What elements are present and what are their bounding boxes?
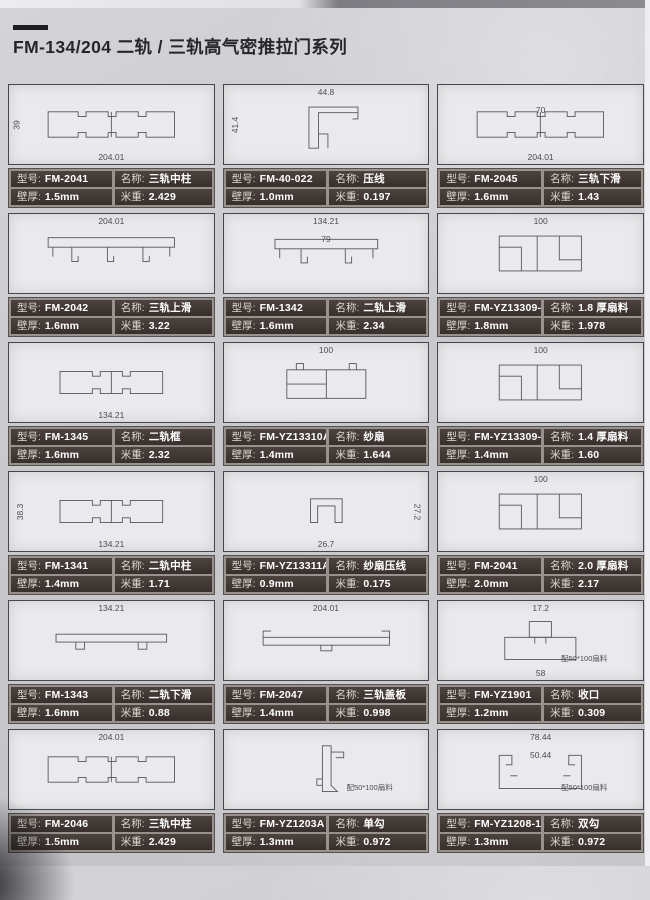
spec-model-cell: 型号:FM-2041 [440,558,541,574]
spec-weight-cell: 米重:1.978 [544,318,641,334]
spec-thickness-cell: 壁厚:1.6mm [11,447,112,463]
spec-name-label: 名称: [550,431,574,443]
spec-name-label: 名称: [550,302,574,314]
spec-thickness-cell: 壁厚:1.3mm [440,834,541,850]
profile-drawing: 70204.01 [437,84,644,165]
dimension-inner-label: 70 [536,106,545,115]
spec-thickness-cell: 壁厚:1.6mm [11,318,112,334]
spec-model-label: 型号: [232,818,256,830]
dimension-top-label: 204.01 [98,217,124,226]
spec-name-cell: 名称:纱扇 [329,429,426,445]
spec-name-cell: 名称:三轨盖板 [329,687,426,703]
title-dash [13,25,48,30]
dimension-top-label: 100 [534,217,548,226]
spec-weight-cell: 米重:1.644 [329,447,426,463]
spec-thickness-value: 1.6mm [45,707,79,719]
spec-weight-value: 0.309 [578,707,605,719]
spec-model-label: 型号: [446,689,470,701]
spec-weight-value: 2.34 [363,320,384,332]
profile-card-FM-YZ1208-1: 78.4450.44配50*100扇料型号:FM-YZ1208-1名称:双勾壁厚… [437,729,644,853]
spec-table: 型号:FM-40-022名称:压线壁厚:1.0mm米重:0.197 [223,168,430,208]
profile-drawing: 134.2179 [223,213,430,294]
spec-model-label: 型号: [446,302,470,314]
dimension-bottom-label: 58 [536,669,545,678]
profile-drawing: 100 [437,471,644,552]
fit-note: 配50*100扇料 [346,782,392,793]
spec-weight-cell: 米重:0.88 [115,705,212,721]
spec-name-value: 三轨盖板 [363,689,406,701]
spec-table: 型号:FM-YZ1203A名称:单勾壁厚:1.3mm米重:0.972 [223,813,430,853]
spec-thickness-label: 壁厚: [446,578,470,590]
spec-model-value: FM-YZ13311A [260,560,327,572]
spec-thickness-value: 1.4mm [260,707,294,719]
spec-model-cell: 型号:FM-YZ1208-1 [440,816,541,832]
spec-weight-cell: 米重:0.309 [544,705,641,721]
profile-card-FM-1342: 134.2179型号:FM-1342名称:二轨上滑壁厚:1.6mm米重:2.34 [223,213,430,337]
spec-thickness-label: 壁厚: [446,191,470,203]
spec-thickness-value: 1.0mm [260,191,294,203]
spec-weight-cell: 米重:0.175 [329,576,426,592]
spec-weight-label: 米重: [121,191,145,203]
spec-thickness-label: 壁厚: [446,707,470,719]
spec-model-cell: 型号:FM-1343 [11,687,112,703]
dimension-top-label: 204.01 [313,604,339,613]
dimension-right-label: 27.2 [413,503,422,520]
spec-model-value: FM-YZ13310A [260,431,327,443]
dimension-bottom-label: 204.01 [98,153,124,162]
dimension-top-label: 17.2 [532,604,549,613]
spec-model-value: FM-40-022 [260,173,313,185]
spec-weight-value: 2.32 [149,449,170,461]
spec-model-cell: 型号:FM-YZ13309-1.4 [440,429,541,445]
spec-name-value: 双勾 [578,818,599,830]
spec-name-cell: 名称:二轨上滑 [329,300,426,316]
spec-weight-cell: 米重:0.972 [544,834,641,850]
spec-model-value: FM-2041 [45,173,88,185]
spec-name-value: 二轨框 [149,431,181,443]
spec-weight-label: 米重: [550,707,574,719]
spec-model-value: FM-1342 [260,302,303,314]
spec-weight-cell: 米重:0.197 [329,189,426,205]
spec-weight-value: 0.175 [363,578,390,590]
spec-name-value: 2.0 厚扇料 [578,560,628,572]
spec-weight-label: 米重: [335,578,359,590]
profile-drawing: 78.4450.44配50*100扇料 [437,729,644,810]
spec-model-cell: 型号:FM-2042 [11,300,112,316]
spec-thickness-value: 1.6mm [474,191,508,203]
dimension-bottom-label: 134.21 [98,411,124,420]
profile-grid: 204.0139型号:FM-2041名称:三轨中柱壁厚:1.5mm米重:2.42… [8,84,644,853]
spec-model-cell: 型号:FM-YZ1901 [440,687,541,703]
profile-card-FM-YZ1203A: 配50*100扇料型号:FM-YZ1203A名称:单勾壁厚:1.3mm米重:0.… [223,729,430,853]
spec-weight-value: 1.43 [578,191,599,203]
spec-name-value: 三轨中柱 [149,818,192,830]
spec-thickness-cell: 壁厚:2.0mm [440,576,541,592]
spec-name-cell: 名称:收口 [544,687,641,703]
spec-name-cell: 名称:双勾 [544,816,641,832]
profile-card-FM-1343: 134.21型号:FM-1343名称:二轨下滑壁厚:1.6mm米重:0.88 [8,600,215,724]
spec-name-value: 三轨下滑 [578,173,621,185]
spec-thickness-value: 1.3mm [474,836,508,848]
spec-name-label: 名称: [335,689,359,701]
spec-name-value: 1.4 厚扇料 [578,431,628,443]
spec-name-label: 名称: [335,431,359,443]
spec-table: 型号:FM-2047名称:三轨盖板壁厚:1.4mm米重:0.998 [223,684,430,724]
spec-thickness-value: 0.9mm [260,578,294,590]
profile-drawing: 17.258配50*100扇料 [437,600,644,681]
profile-card-FM-YZ13311A: 26.727.2型号:FM-YZ13311A名称:纱扇压线壁厚:0.9mm米重:… [223,471,430,595]
spec-thickness-label: 壁厚: [446,320,470,332]
spec-weight-value: 0.197 [363,191,390,203]
spec-name-label: 名称: [550,560,574,572]
profile-drawing: 100 [437,213,644,294]
spec-model-cell: 型号:FM-YZ13311A [226,558,327,574]
spec-thickness-label: 壁厚: [17,320,41,332]
photo-corner-shadow [0,790,76,900]
spec-table: 型号:FM-YZ13309-1.4名称:1.4 厚扇料壁厚:1.4mm米重:1.… [437,426,644,466]
spec-weight-label: 米重: [121,578,145,590]
spec-thickness-label: 壁厚: [17,578,41,590]
spec-model-cell: 型号:FM-1342 [226,300,327,316]
spec-name-label: 名称: [335,173,359,185]
spec-weight-label: 米重: [550,320,574,332]
spec-model-label: 型号: [446,173,470,185]
spec-model-cell: 型号:FM-YZ13310A [226,429,327,445]
profile-card-FM-2042: 204.01型号:FM-2042名称:三轨上滑壁厚:1.6mm米重:3.22 [8,213,215,337]
spec-table: 型号:FM-2041名称:2.0 厚扇料壁厚:2.0mm米重:2.17 [437,555,644,595]
spec-model-label: 型号: [17,302,41,314]
spec-weight-value: 2.17 [578,578,599,590]
spec-thickness-value: 2.0mm [474,578,508,590]
spec-weight-label: 米重: [550,449,574,461]
spec-weight-cell: 米重:1.60 [544,447,641,463]
profile-card-FM-40-022: 44.841.4型号:FM-40-022名称:压线壁厚:1.0mm米重:0.19… [223,84,430,208]
profile-card-FM-2047: 204.01型号:FM-2047名称:三轨盖板壁厚:1.4mm米重:0.998 [223,600,430,724]
spec-name-value: 1.8 厚扇料 [578,302,628,314]
spec-model-cell: 型号:FM-1341 [11,558,112,574]
profile-drawing: 38.3134.21 [8,471,215,552]
spec-name-value: 三轨中柱 [149,173,192,185]
dimension-left-label: 41.4 [231,116,240,133]
dimension-bottom-label: 204.01 [528,153,554,162]
spec-model-value: FM-2042 [45,302,88,314]
spec-name-label: 名称: [335,560,359,572]
spec-weight-cell: 米重:3.22 [115,318,212,334]
dimension-top-label: 78.44 [530,733,551,742]
spec-name-cell: 名称:单勾 [329,816,426,832]
spec-model-cell: 型号:FM-YZ1203A [226,816,327,832]
spec-thickness-value: 1.4mm [474,449,508,461]
profile-card-FM-2045: 70204.01型号:FM-2045名称:三轨下滑壁厚:1.6mm米重:1.43 [437,84,644,208]
spec-weight-label: 米重: [335,320,359,332]
spec-thickness-cell: 壁厚:1.4mm [11,576,112,592]
spec-model-value: FM-YZ1208-1 [474,818,541,830]
spec-table: 型号:FM-YZ13309-1.8名称:1.8 厚扇料壁厚:1.8mm米重:1.… [437,297,644,337]
spec-name-label: 名称: [550,173,574,185]
spec-thickness-cell: 壁厚:1.6mm [11,705,112,721]
spec-weight-cell: 米重:2.34 [329,318,426,334]
spec-name-cell: 名称:三轨中柱 [115,171,212,187]
fit-note: 配50*100扇料 [561,782,607,793]
spec-name-value: 收口 [578,689,599,701]
spec-name-cell: 名称:1.4 厚扇料 [544,429,641,445]
spec-thickness-cell: 壁厚:0.9mm [226,576,327,592]
spec-model-value: FM-2045 [474,173,517,185]
dimension-inner-label: 50.44 [530,751,551,760]
dimension-top-label: 44.8 [318,88,335,97]
spec-weight-label: 米重: [335,449,359,461]
spec-thickness-label: 壁厚: [17,707,41,719]
profile-card-FM-YZ13310A: 100型号:FM-YZ13310A名称:纱扇壁厚:1.4mm米重:1.644 [223,342,430,466]
spec-model-label: 型号: [446,560,470,572]
spec-model-label: 型号: [17,560,41,572]
spec-thickness-label: 壁厚: [17,191,41,203]
profile-card-FM-YZ13309-1.4: 100型号:FM-YZ13309-1.4名称:1.4 厚扇料壁厚:1.4mm米重… [437,342,644,466]
profile-card-FM-2041: 204.0139型号:FM-2041名称:三轨中柱壁厚:1.5mm米重:2.42… [8,84,215,208]
profile-drawing: 204.01 [8,213,215,294]
spec-table: 型号:FM-YZ1208-1名称:双勾壁厚:1.3mm米重:0.972 [437,813,644,853]
spec-model-value: FM-1341 [45,560,88,572]
profile-drawing: 134.21 [8,600,215,681]
dimension-inner-label: 79 [321,235,330,244]
spec-model-label: 型号: [17,431,41,443]
spec-weight-cell: 米重:2.17 [544,576,641,592]
spec-thickness-value: 1.4mm [260,449,294,461]
spec-name-label: 名称: [121,302,145,314]
spec-name-label: 名称: [121,560,145,572]
spec-thickness-value: 1.3mm [260,836,294,848]
spec-name-cell: 名称:1.8 厚扇料 [544,300,641,316]
dimension-left-label: 38.3 [16,503,25,520]
spec-table: 型号:FM-YZ13311A名称:纱扇压线壁厚:0.9mm米重:0.175 [223,555,430,595]
spec-weight-cell: 米重:2.429 [115,834,212,850]
profile-drawing: 100 [223,342,430,423]
page-title: FM-134/204 二轨 / 三轨高气密推拉门系列 [13,34,347,59]
spec-name-value: 纱扇 [363,431,384,443]
spec-weight-value: 2.429 [149,836,176,848]
spec-model-label: 型号: [17,173,41,185]
spec-model-cell: 型号:FM-2045 [440,171,541,187]
spec-thickness-label: 壁厚: [232,707,256,719]
spec-thickness-label: 壁厚: [232,578,256,590]
spec-thickness-value: 1.4mm [45,578,79,590]
spec-thickness-label: 壁厚: [446,449,470,461]
spec-name-cell: 名称:三轨下滑 [544,171,641,187]
profile-shape-hook1 [224,730,429,809]
spec-model-value: FM-YZ1901 [474,689,531,701]
spec-weight-label: 米重: [121,836,145,848]
profile-drawing: 204.01 [223,600,430,681]
spec-name-cell: 名称:三轨上滑 [115,300,212,316]
spec-name-cell: 名称:2.0 厚扇料 [544,558,641,574]
spec-weight-label: 米重: [550,191,574,203]
spec-name-value: 单勾 [363,818,384,830]
profile-drawing: 配50*100扇料 [223,729,430,810]
spec-model-cell: 型号:FM-2041 [11,171,112,187]
spec-model-label: 型号: [17,689,41,701]
spec-model-cell: 型号:FM-YZ13309-1.8 [440,300,541,316]
spec-weight-cell: 米重:0.972 [329,834,426,850]
spec-weight-value: 0.998 [363,707,390,719]
spec-weight-value: 2.429 [149,191,176,203]
spec-model-cell: 型号:FM-40-022 [226,171,327,187]
profile-card-FM-1345: 134.21型号:FM-1345名称:二轨框壁厚:1.6mm米重:2.32 [8,342,215,466]
spec-name-value: 三轨上滑 [149,302,192,314]
spec-model-value: FM-1343 [45,689,88,701]
page-right-edge [645,0,650,866]
spec-weight-value: 0.88 [149,707,170,719]
spec-thickness-cell: 壁厚:1.8mm [440,318,541,334]
page-top-edge [0,0,650,8]
spec-name-cell: 名称:纱扇压线 [329,558,426,574]
spec-model-value: FM-2041 [474,560,517,572]
spec-name-label: 名称: [550,689,574,701]
spec-table: 型号:FM-1345名称:二轨框壁厚:1.6mm米重:2.32 [8,426,215,466]
spec-name-value: 二轨下滑 [149,689,192,701]
spec-weight-label: 米重: [335,836,359,848]
profile-card-FM-YZ1901: 17.258配50*100扇料型号:FM-YZ1901名称:收口壁厚:1.2mm… [437,600,644,724]
spec-table: 型号:FM-2045名称:三轨下滑壁厚:1.6mm米重:1.43 [437,168,644,208]
spec-model-label: 型号: [232,431,256,443]
profile-drawing: 44.841.4 [223,84,430,165]
spec-thickness-value: 1.6mm [45,449,79,461]
spec-name-label: 名称: [121,689,145,701]
spec-thickness-cell: 壁厚:1.5mm [11,189,112,205]
dimension-top-label: 100 [534,346,548,355]
spec-thickness-value: 1.5mm [45,191,79,203]
dimension-top-label: 100 [319,346,333,355]
spec-name-label: 名称: [335,818,359,830]
spec-table: 型号:FM-YZ13310A名称:纱扇壁厚:1.4mm米重:1.644 [223,426,430,466]
spec-weight-label: 米重: [121,449,145,461]
spec-model-value: FM-YZ13309-1.4 [474,431,541,443]
spec-thickness-value: 1.6mm [45,320,79,332]
spec-thickness-value: 1.2mm [474,707,508,719]
spec-weight-cell: 米重:1.43 [544,189,641,205]
spec-model-cell: 型号:FM-2047 [226,687,327,703]
spec-name-cell: 名称:二轨下滑 [115,687,212,703]
spec-thickness-cell: 壁厚:1.0mm [226,189,327,205]
spec-thickness-cell: 壁厚:1.6mm [226,318,327,334]
spec-weight-cell: 米重:1.71 [115,576,212,592]
spec-model-value: FM-YZ13309-1.8 [474,302,541,314]
spec-name-cell: 名称:二轨框 [115,429,212,445]
spec-thickness-cell: 壁厚:1.4mm [440,447,541,463]
spec-weight-label: 米重: [121,320,145,332]
spec-model-value: FM-2047 [260,689,303,701]
spec-table: 型号:FM-YZ1901名称:收口壁厚:1.2mm米重:0.309 [437,684,644,724]
dimension-top-label: 204.01 [98,733,124,742]
dimension-bottom-label: 26.7 [318,540,335,549]
spec-weight-value: 1.71 [149,578,170,590]
spec-name-label: 名称: [335,302,359,314]
spec-model-label: 型号: [232,689,256,701]
spec-weight-cell: 米重:2.32 [115,447,212,463]
spec-thickness-cell: 壁厚:1.4mm [226,447,327,463]
spec-thickness-label: 壁厚: [17,449,41,461]
spec-weight-label: 米重: [550,578,574,590]
spec-model-label: 型号: [446,431,470,443]
spec-name-value: 二轨中柱 [149,560,192,572]
spec-model-label: 型号: [232,173,256,185]
spec-name-cell: 名称:三轨中柱 [115,816,212,832]
spec-weight-cell: 米重:2.429 [115,189,212,205]
spec-weight-label: 米重: [121,707,145,719]
spec-weight-label: 米重: [335,707,359,719]
spec-name-cell: 名称:压线 [329,171,426,187]
spec-name-label: 名称: [121,431,145,443]
spec-weight-value: 1.978 [578,320,605,332]
profile-card-FM-1341: 38.3134.21型号:FM-1341名称:二轨中柱壁厚:1.4mm米重:1.… [8,471,215,595]
spec-thickness-cell: 壁厚:1.4mm [226,705,327,721]
profile-drawing: 134.21 [8,342,215,423]
spec-model-value: FM-1345 [45,431,88,443]
spec-thickness-cell: 壁厚:1.3mm [226,834,327,850]
dimension-bottom-label: 134.21 [98,540,124,549]
spec-weight-label: 米重: [550,836,574,848]
profile-card-FM-YZ13309-1.8: 100型号:FM-YZ13309-1.8名称:1.8 厚扇料壁厚:1.8mm米重… [437,213,644,337]
spec-thickness-label: 壁厚: [232,449,256,461]
spec-model-value: FM-YZ1203A [260,818,325,830]
dimension-top-label: 100 [534,475,548,484]
profile-drawing: 26.727.2 [223,471,430,552]
spec-thickness-label: 壁厚: [232,836,256,848]
spec-name-label: 名称: [550,818,574,830]
spec-model-cell: 型号:FM-1345 [11,429,112,445]
spec-name-label: 名称: [121,173,145,185]
profile-card-FM-2041: 100型号:FM-2041名称:2.0 厚扇料壁厚:2.0mm米重:2.17 [437,471,644,595]
spec-model-label: 型号: [232,302,256,314]
spec-weight-value: 3.22 [149,320,170,332]
spec-thickness-label: 壁厚: [232,320,256,332]
spec-table: 型号:FM-1343名称:二轨下滑壁厚:1.6mm米重:0.88 [8,684,215,724]
spec-model-label: 型号: [446,818,470,830]
spec-name-value: 压线 [363,173,384,185]
spec-name-value: 纱扇压线 [363,560,406,572]
spec-thickness-value: 1.6mm [260,320,294,332]
spec-weight-cell: 米重:0.998 [329,705,426,721]
spec-thickness-label: 壁厚: [446,836,470,848]
spec-thickness-cell: 壁厚:1.2mm [440,705,541,721]
dimension-top-label: 134.21 [98,604,124,613]
spec-thickness-value: 1.8mm [474,320,508,332]
spec-table: 型号:FM-2042名称:三轨上滑壁厚:1.6mm米重:3.22 [8,297,215,337]
spec-name-cell: 名称:二轨中柱 [115,558,212,574]
profile-drawing: 204.0139 [8,84,215,165]
spec-table: 型号:FM-1341名称:二轨中柱壁厚:1.4mm米重:1.71 [8,555,215,595]
fit-note: 配50*100扇料 [561,653,607,664]
spec-name-value: 二轨上滑 [363,302,406,314]
spec-weight-label: 米重: [335,191,359,203]
spec-weight-value: 0.972 [363,836,390,848]
profile-drawing: 100 [437,342,644,423]
spec-weight-value: 0.972 [578,836,605,848]
spec-thickness-cell: 壁厚:1.6mm [440,189,541,205]
spec-table: 型号:FM-2041名称:三轨中柱壁厚:1.5mm米重:2.429 [8,168,215,208]
spec-weight-value: 1.60 [578,449,599,461]
spec-weight-value: 1.644 [363,449,390,461]
dimension-left-label: 39 [12,120,21,129]
dimension-top-label: 134.21 [313,217,339,226]
spec-model-label: 型号: [232,560,256,572]
spec-name-label: 名称: [121,818,145,830]
spec-thickness-label: 壁厚: [232,191,256,203]
spec-table: 型号:FM-1342名称:二轨上滑壁厚:1.6mm米重:2.34 [223,297,430,337]
